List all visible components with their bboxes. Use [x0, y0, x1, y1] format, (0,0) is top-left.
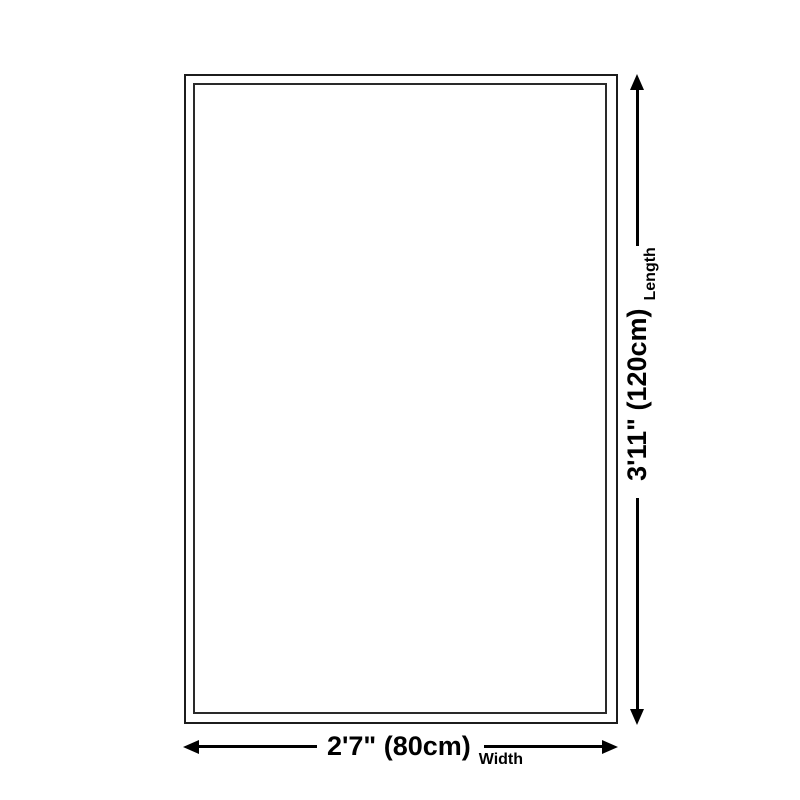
length-arrow-down-icon	[630, 709, 644, 725]
dimension-diagram: 3'11" (120cm) Length 2'7" (80cm) Width	[0, 0, 800, 800]
length-dimension-line-upper	[636, 86, 639, 246]
width-dimension-label: 2'7" (80cm) Width	[225, 733, 625, 769]
width-value: 2'7" (80cm)	[327, 733, 471, 760]
width-arrow-right-icon	[602, 740, 618, 754]
width-axis-label: Width	[479, 752, 523, 768]
length-value: 3'11" (120cm)	[624, 309, 651, 481]
length-axis-label: Length	[643, 247, 659, 300]
width-dimension-line-right	[484, 745, 604, 748]
length-dimension-line-lower	[636, 498, 639, 710]
product-outline-inner	[193, 83, 607, 714]
length-dimension-label: 3'11" (120cm) Length	[624, 246, 660, 482]
